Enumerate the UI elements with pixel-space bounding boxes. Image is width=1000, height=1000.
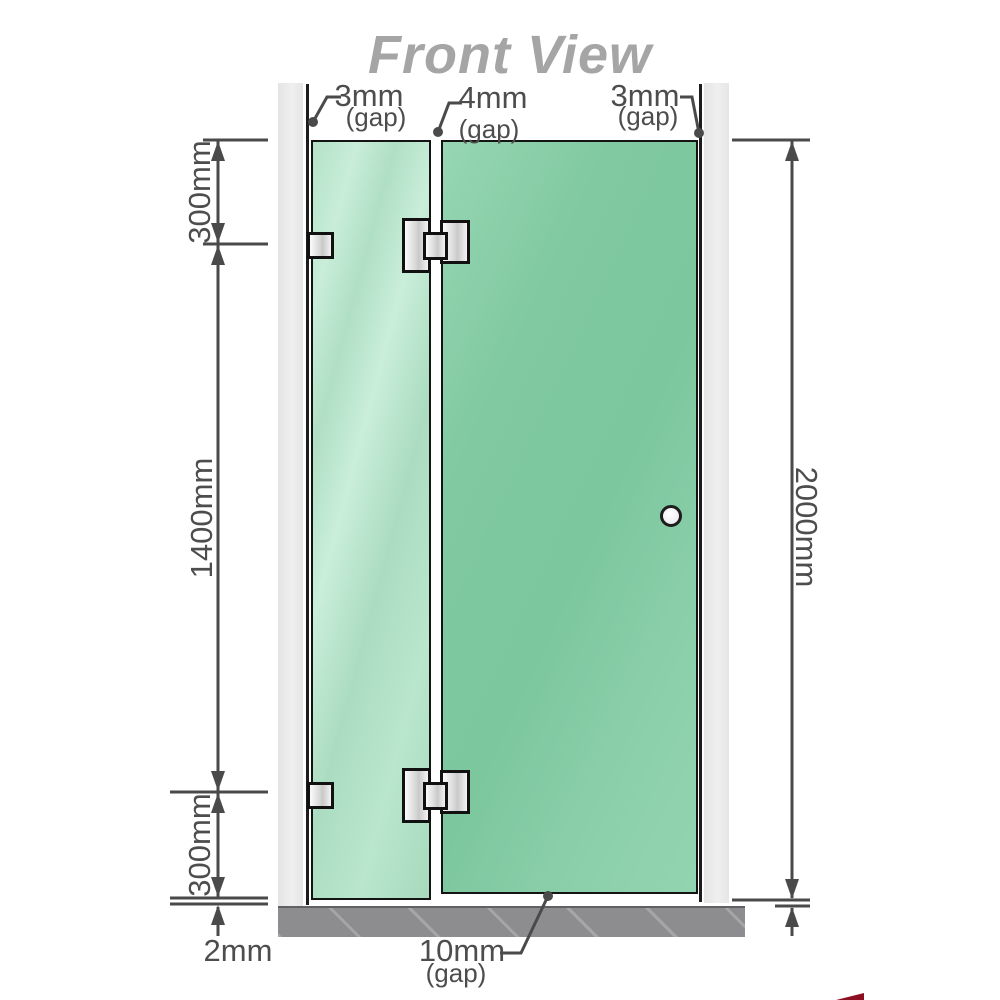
label-segment-middle: 1400mm <box>186 448 218 588</box>
watermark-sliver <box>836 993 864 1000</box>
label-top-middle-gap-value: 4mm <box>454 82 532 113</box>
label-total-height: 2000mm <box>790 452 822 602</box>
label-top-right-gap-qualifier: (gap) <box>608 103 688 129</box>
label-segment-bottom: 300mm <box>184 785 216 905</box>
label-top-middle-gap-qualifier: (gap) <box>450 116 528 142</box>
label-top-left-gap-qualifier: (gap) <box>336 104 416 130</box>
label-bottom-gap-qualifier: (gap) <box>412 960 500 986</box>
wall-bracket-bottom <box>307 782 334 809</box>
top-hinge-knuckle <box>423 232 448 260</box>
label-floor-clearance: 2mm <box>198 935 278 966</box>
left-wall <box>278 83 303 908</box>
bottom-hinge-knuckle <box>423 782 448 810</box>
page-title: Front View <box>320 24 700 86</box>
label-segment-top: 300mm <box>184 132 216 252</box>
wall-bracket-top <box>307 232 334 259</box>
right-wall-edge-line <box>699 84 702 902</box>
floor-slab <box>278 906 745 937</box>
right-wall <box>704 83 729 903</box>
door-knob <box>660 505 682 527</box>
front-view-diagram: Front View <box>0 0 1000 1000</box>
